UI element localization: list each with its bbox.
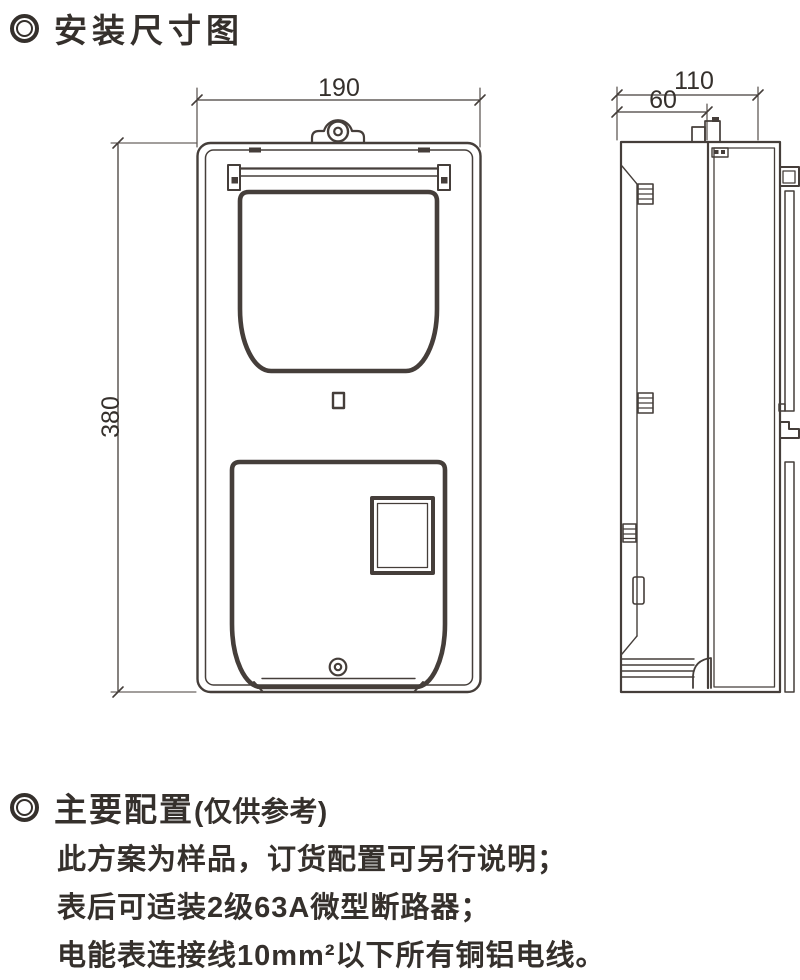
hanger-hole-icon [328, 122, 348, 142]
config-section-title: 主要配置 [54, 783, 194, 831]
config-line-3: 电能表连接线10mm²以下所有铜铝电线。 [57, 932, 606, 980]
config-section-heading: 主要配置 (仅供参考) [10, 783, 328, 831]
double-circle-bullet-icon [10, 793, 39, 822]
front-height-label: 380 [97, 396, 125, 438]
side-body [621, 142, 780, 692]
top-clip-right [418, 148, 430, 153]
side-offset-label: 60 [649, 86, 677, 114]
config-section-note: (仅供参考) [194, 790, 328, 830]
door-window [372, 498, 433, 573]
hinge-ridges-lower [623, 524, 636, 542]
front-view-drawing [198, 120, 481, 692]
side-body-inner [714, 148, 775, 687]
bottom-vents [622, 659, 695, 677]
meter-window [240, 192, 437, 371]
config-line-2: 表后可适装2级63A微型断路器； [57, 884, 606, 932]
side-hanger-bracket [692, 117, 728, 157]
mount-rail-upper [785, 191, 794, 411]
door-latch [633, 577, 644, 604]
config-text-block: 此方案为样品，订货配置可另行说明； 表后可适装2级63A微型断路器； 电能表连接… [57, 836, 606, 980]
mount-rail-lower [785, 462, 794, 692]
side-view-drawing [621, 117, 799, 692]
door-screw-icon [330, 659, 347, 676]
mount-tab-middle [780, 422, 799, 438]
hinge-ridges-middle [638, 393, 653, 413]
top-clip-left [249, 148, 261, 153]
installation-dimension-drawing: 190 380 110 60 [0, 0, 800, 762]
catalog-page: 安装尺寸图 [0, 0, 800, 980]
front-width-label: 190 [318, 74, 360, 102]
front-inner-rim [206, 150, 473, 685]
cover-face [622, 166, 637, 654]
hinge-ridges-top [638, 184, 653, 204]
mount-tab-top [780, 167, 799, 186]
hanger-bracket [312, 120, 364, 143]
top-rail [228, 165, 450, 190]
seal-button [333, 393, 344, 408]
side-depth-label: 110 [674, 67, 714, 95]
config-line-1: 此方案为样品，订货配置可另行说明； [57, 836, 606, 884]
